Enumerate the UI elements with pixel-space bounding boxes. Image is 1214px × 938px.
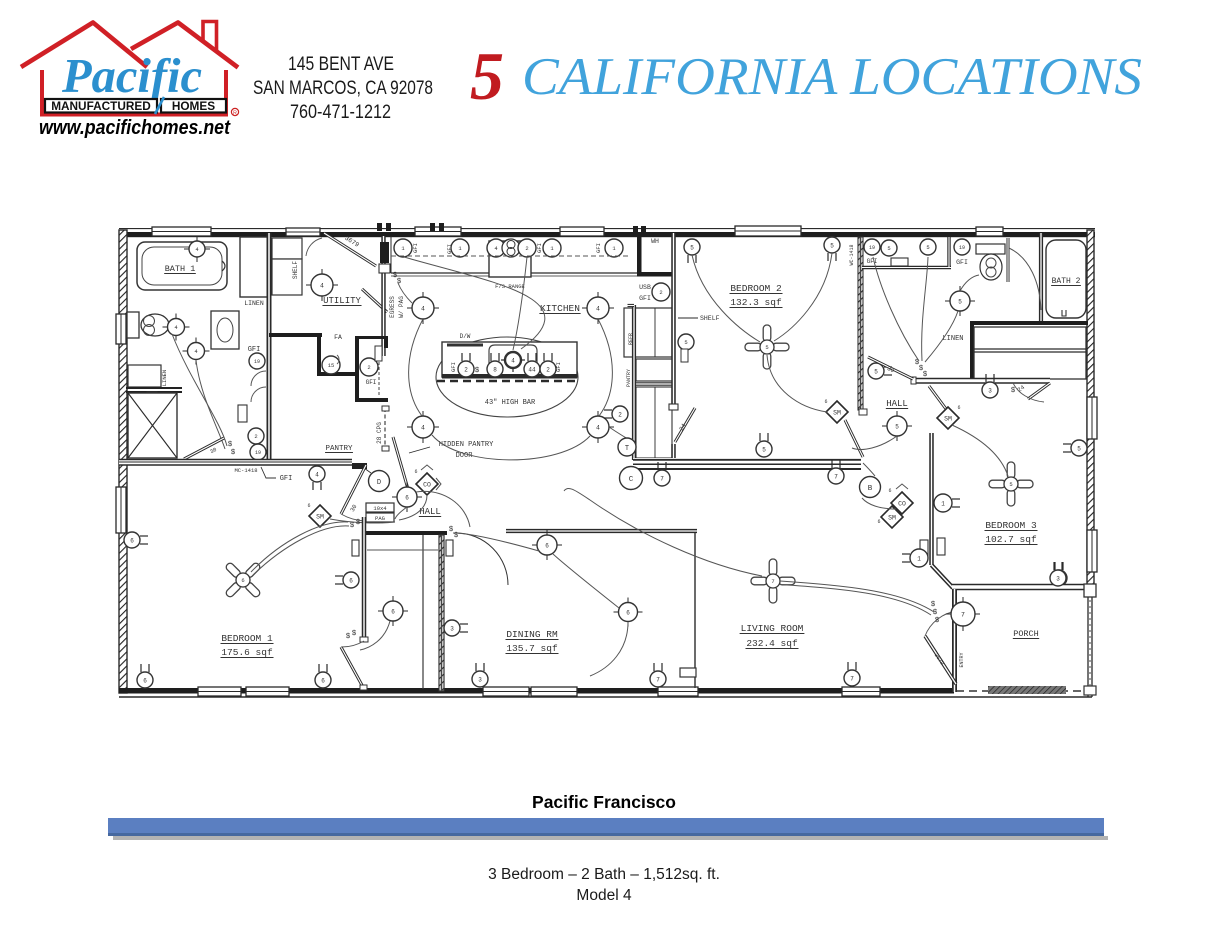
svg-text:GFI: GFI [639,295,651,302]
svg-text:$: $ [352,630,357,638]
svg-text:GFI: GFI [366,379,377,386]
svg-text:MC-1418: MC-1418 [234,467,257,474]
svg-text:5: 5 [470,38,504,114]
svg-text:$: $ [475,367,480,375]
svg-text:D/W: D/W [460,333,471,340]
svg-text:PORCH: PORCH [1013,629,1039,639]
svg-text:5: 5 [762,446,766,453]
svg-text:$: $ [346,633,351,641]
svg-text:BEDROOM 2: BEDROOM 2 [730,283,782,294]
svg-text:GFI: GFI [412,243,419,253]
svg-text:HIDDEN PANTRY: HIDDEN PANTRY [439,441,494,449]
svg-text:GFI: GFI [450,362,457,372]
svg-text:132.3 sqf: 132.3 sqf [730,297,782,308]
svg-text:6: 6 [405,494,409,501]
svg-text:175.6 sqf: 175.6 sqf [221,647,273,658]
svg-text:135.7 sqf: 135.7 sqf [506,643,558,654]
svg-text:GFI: GFI [555,362,562,372]
svg-text:W/ PAG: W/ PAG [398,296,405,318]
svg-text:R: R [233,110,237,116]
svg-text:3: 3 [450,625,454,632]
svg-text:LIVING ROOM: LIVING ROOM [741,623,804,634]
svg-text:GFI: GFI [595,243,602,253]
svg-text:$: $ [931,601,936,609]
svg-text:PANTRY: PANTRY [325,445,353,453]
svg-text:5: 5 [690,244,694,251]
svg-text:3: 3 [478,676,482,683]
svg-text:6: 6 [321,677,325,684]
svg-text:1: 1 [941,500,945,507]
svg-text:6: 6 [824,399,827,405]
svg-text:MANUFACTURED: MANUFACTURED [51,99,151,113]
svg-text:Pacific: Pacific [61,50,202,103]
svg-text:SHELF: SHELF [292,261,299,279]
svg-text:5: 5 [1077,445,1081,452]
svg-text:GFI: GFI [446,244,453,254]
svg-text:BEDROOM 3: BEDROOM 3 [985,520,1037,531]
svg-text:145 BENT AVE: 145 BENT AVE [288,53,394,75]
svg-text:7: 7 [656,676,660,683]
svg-text:$: $ [228,441,233,449]
svg-text:6: 6 [414,469,417,475]
svg-text:5: 5 [874,368,878,375]
svg-text:EGRESS: EGRESS [389,296,396,318]
svg-text:15: 15 [328,362,335,369]
svg-text:5: 5 [684,339,687,346]
svg-text:4: 4 [511,358,515,365]
svg-text:T: T [625,445,629,453]
svg-text:WC-1418: WC-1418 [849,244,855,265]
svg-text:BEDROOM 1: BEDROOM 1 [221,633,273,644]
svg-text:6: 6 [349,577,353,584]
svg-text:44: 44 [528,366,536,373]
svg-text:Pacific Francisco: Pacific Francisco [532,792,676,812]
svg-text:7: 7 [961,611,965,618]
svg-text:5: 5 [887,245,890,252]
svg-text:5: 5 [830,242,834,249]
svg-text:2: 2 [464,366,468,373]
svg-text:SM: SM [833,409,841,416]
svg-text:$: $ [935,617,940,625]
svg-text:19: 19 [869,245,875,251]
svg-text:CALIFORNIA LOCATIONS: CALIFORNIA LOCATIONS [522,48,1142,106]
svg-text:KITCHEN: KITCHEN [540,303,580,314]
svg-text:3: 3 [1056,575,1060,582]
svg-text:19: 19 [254,359,260,365]
svg-text:10x4: 10x4 [373,505,387,512]
svg-text:6: 6 [626,609,630,616]
svg-text:PAG: PAG [375,515,385,522]
svg-text:FA: FA [334,334,342,341]
svg-text:2: 2 [367,364,370,371]
svg-text:SM: SM [888,514,896,521]
svg-text:4: 4 [315,471,319,478]
svg-text:$: $ [350,522,355,530]
svg-text:4: 4 [596,424,600,431]
svg-text:5: 5 [926,244,929,251]
svg-text:SHELF: SHELF [700,315,720,322]
svg-text:6: 6 [143,677,147,684]
svg-text:8: 8 [493,366,497,373]
svg-text:2: 2 [525,245,528,252]
svg-text:$: $ [1011,387,1016,395]
svg-text:UTILITY: UTILITY [323,296,361,306]
svg-text:GFI: GFI [867,258,878,265]
svg-text:CO: CO [423,481,431,488]
svg-text:3: 3 [988,387,992,394]
svg-text:D: D [377,479,381,487]
svg-text:CO: CO [898,500,906,507]
svg-text:7: 7 [771,578,774,585]
svg-text:19: 19 [959,245,965,251]
svg-text:C: C [629,476,634,484]
svg-text:232.4 sqf: 232.4 sqf [746,638,798,649]
svg-text:SM: SM [316,513,324,520]
svg-text:2: 2 [659,289,662,296]
svg-text:43" HIGH BAR: 43" HIGH BAR [485,399,536,407]
svg-text:2: 2 [546,366,550,373]
svg-text:1: 1 [917,555,921,562]
svg-text:6: 6 [877,519,880,525]
svg-text:28 CPG: 28 CPG [376,422,383,444]
svg-text:6: 6 [391,608,395,615]
svg-text:6: 6 [130,537,134,544]
svg-text:5: 5 [895,423,899,430]
svg-text:LINEN: LINEN [244,300,264,307]
svg-text:ENTRY: ENTRY [959,652,965,667]
svg-text:WH: WH [651,238,659,245]
svg-text:BATH 1: BATH 1 [165,264,196,274]
svg-text:USB: USB [639,284,651,291]
svg-text:5: 5 [1009,481,1012,488]
svg-text:4: 4 [421,424,425,431]
svg-text:2: 2 [254,433,257,440]
svg-text:$: $ [231,449,236,457]
svg-text:GFI: GFI [280,475,293,483]
svg-text:19: 19 [255,450,261,456]
svg-text:SM: SM [944,415,952,422]
svg-text:www.pacifichomes.net: www.pacifichomes.net [39,116,231,139]
svg-text:$: $ [933,609,938,617]
svg-text:Model 4: Model 4 [576,887,632,904]
svg-text:SAN MARCOS, CA 92078: SAN MARCOS, CA 92078 [253,77,433,99]
svg-text:6: 6 [957,405,960,411]
svg-text:LINEN: LINEN [942,335,963,343]
svg-text:3 Bedroom – 2 Bath – 1,512sq.: 3 Bedroom – 2 Bath – 1,512sq. ft. [488,866,720,883]
svg-text:B: B [868,485,873,493]
svg-text:4: 4 [421,305,425,312]
svg-text:7: 7 [834,473,838,480]
svg-text:2: 2 [618,411,622,418]
svg-text:5: 5 [958,298,962,305]
svg-text:LINEN: LINEN [161,370,168,387]
svg-text:HALL: HALL [886,399,908,409]
svg-text:6: 6 [888,488,891,494]
svg-text:DINING RM: DINING RM [506,629,558,640]
svg-text:PANTRY: PANTRY [626,369,632,387]
svg-text:7: 7 [660,475,664,482]
svg-text:5: 5 [765,344,768,351]
svg-text:6: 6 [307,503,310,509]
svg-text:4: 4 [320,282,324,289]
svg-text:6: 6 [241,577,244,584]
svg-text:4: 4 [596,305,600,312]
svg-text:6: 6 [545,542,549,549]
svg-text:HOMES: HOMES [172,99,215,113]
svg-text:102.7 sqf: 102.7 sqf [985,534,1037,545]
svg-text:$: $ [923,371,928,379]
svg-text:BATH 2: BATH 2 [1052,277,1081,286]
svg-text:GFI: GFI [956,259,968,266]
svg-text:760-471-1212: 760-471-1212 [290,101,391,123]
svg-text:7: 7 [850,675,854,682]
svg-text:GFI: GFI [536,243,543,253]
